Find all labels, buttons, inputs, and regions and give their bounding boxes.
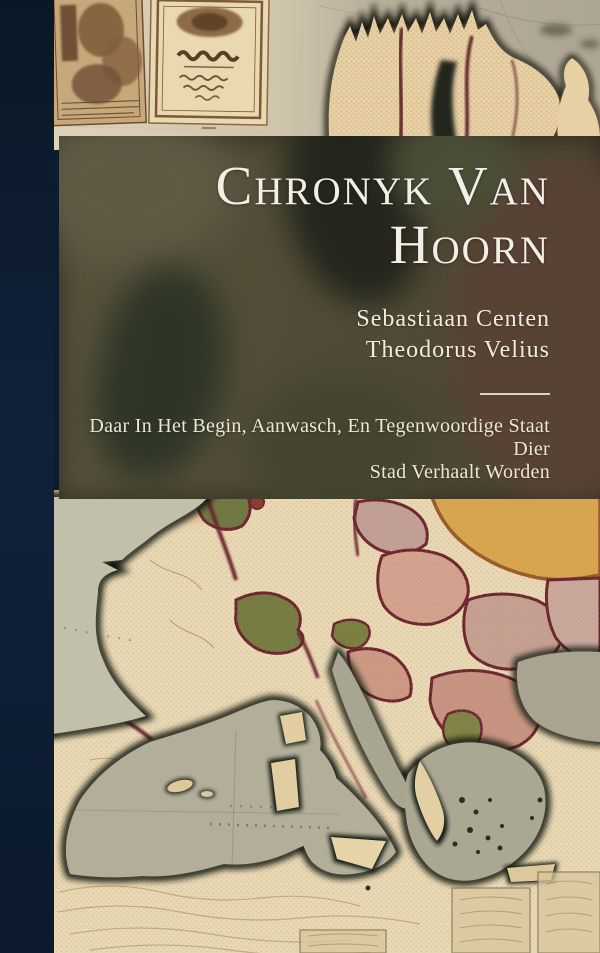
author-primary: Sebastiaan Centen (356, 304, 550, 335)
map-europe (54, 489, 600, 953)
subtitle-line1: Daar In Het Begin, Aanwasch, En Tegenwoo… (89, 415, 550, 461)
title-divider-rule (480, 393, 550, 395)
bookplate-engraving-title-page (149, 0, 269, 129)
book-title-line1: Chronyk Van (216, 156, 550, 215)
title-panel: Chronyk Van Hoorn Sebastiaan Centen Theo… (59, 136, 600, 499)
page-title: Chronyk Van Hoorn (216, 156, 550, 274)
subtitle-line2: Stad Verhaalt Worden (89, 461, 550, 484)
book-title-line2: Hoorn (216, 215, 550, 274)
author-names: Sebastiaan Centen Theodorus Velius (356, 304, 550, 366)
bookplate-engraving-left (54, 0, 146, 126)
title-block: Chronyk Van Hoorn Sebastiaan Centen Theo… (59, 136, 600, 499)
book-subtitle: Daar In Het Begin, Aanwasch, En Tegenwoo… (89, 415, 550, 484)
author-secondary: Theodorus Velius (356, 335, 550, 366)
book-cover: { "cover": { "title_lines": ["Chronyk Va… (0, 0, 600, 953)
cover-spine-strip (0, 0, 54, 953)
